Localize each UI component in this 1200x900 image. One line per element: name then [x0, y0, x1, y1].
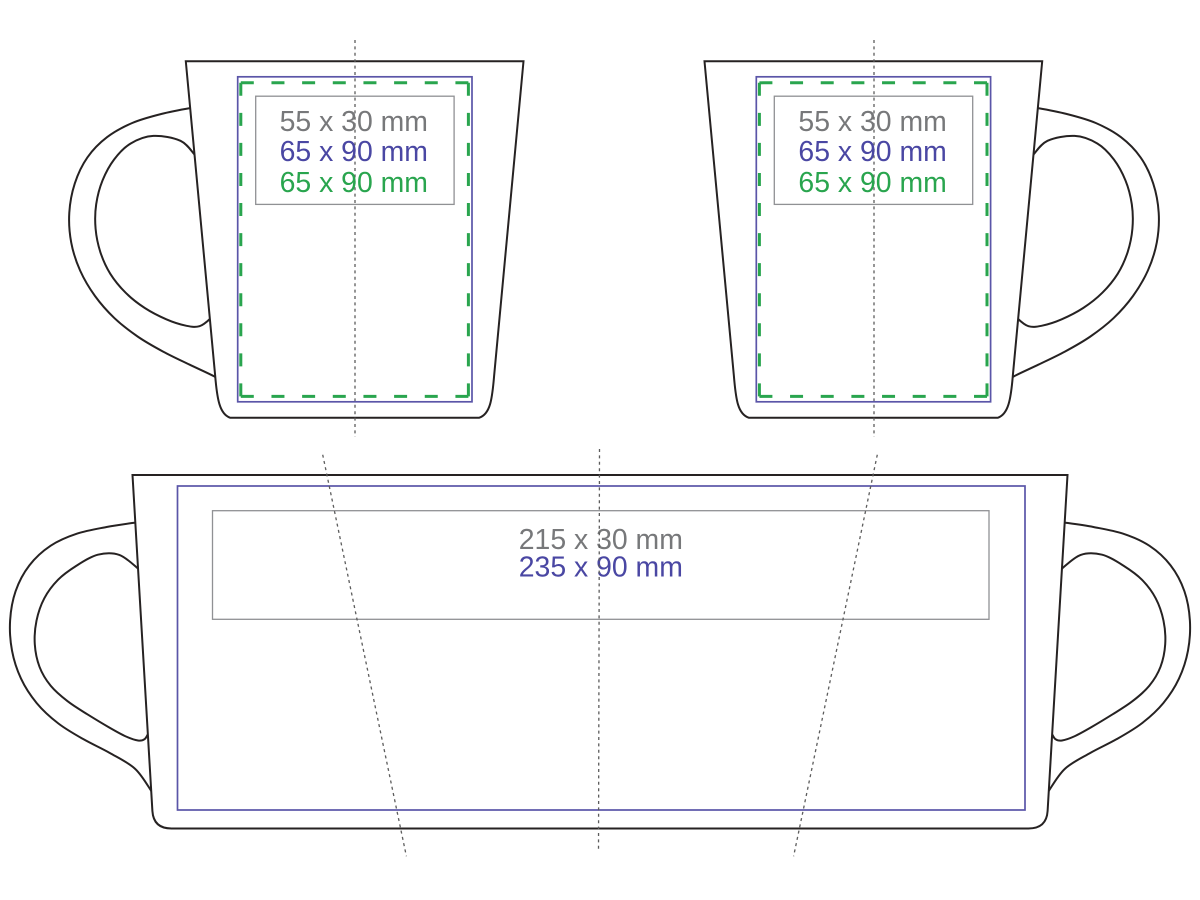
svg-text:65 x 90 mm: 65 x 90 mm: [280, 136, 428, 168]
svg-text:235 x 90 mm: 235 x 90 mm: [519, 552, 683, 584]
svg-text:65 x 90 mm: 65 x 90 mm: [798, 167, 946, 199]
svg-text:55 x 30 mm: 55 x 30 mm: [798, 106, 946, 138]
svg-text:65 x 90 mm: 65 x 90 mm: [280, 167, 428, 199]
svg-text:55 x 30 mm: 55 x 30 mm: [280, 106, 428, 138]
svg-text:65 x 90 mm: 65 x 90 mm: [798, 136, 946, 168]
